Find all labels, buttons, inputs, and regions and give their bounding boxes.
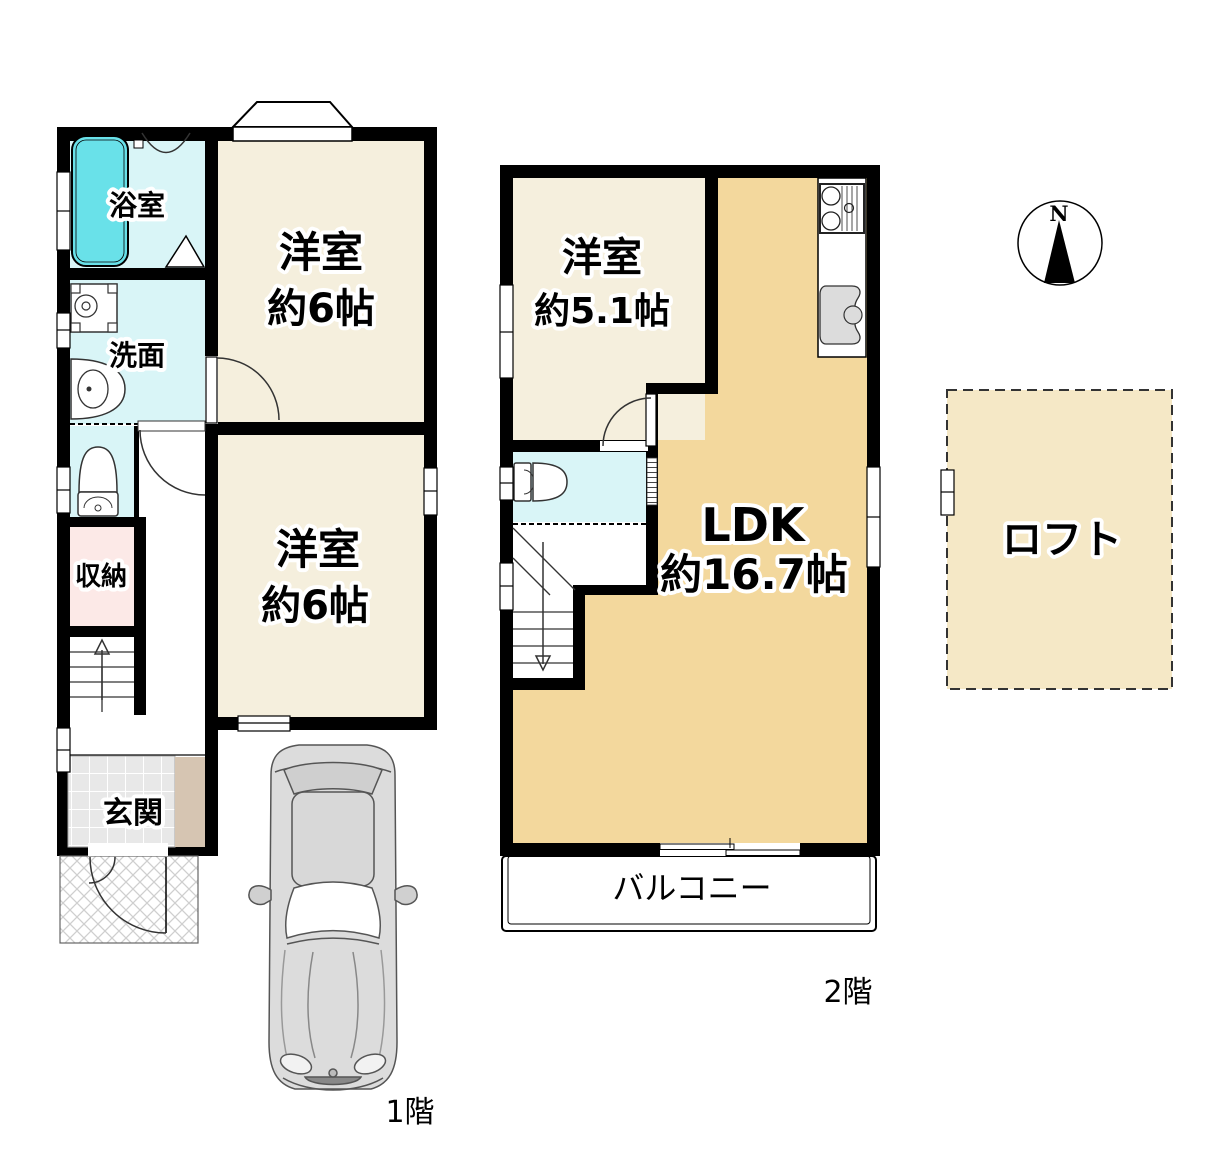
window-marker-toilet2-left bbox=[500, 467, 513, 500]
balcony-label: バルコニー bbox=[612, 869, 771, 907]
bedroom2-name-label: 洋室 bbox=[276, 525, 360, 574]
car-icon bbox=[249, 745, 417, 1090]
wall-toilet-bottom bbox=[57, 517, 146, 527]
entrance-label: 玄関 bbox=[103, 796, 163, 831]
bedroom1-size-label: 約6帖 bbox=[267, 286, 375, 332]
kitchen-stove-icon bbox=[820, 184, 864, 233]
wall-notch-horizontal bbox=[646, 383, 718, 394]
toilet2-door-accordion bbox=[647, 458, 657, 505]
wall-toilet-partition bbox=[134, 426, 139, 517]
bedroom1-name-label: 洋室 bbox=[279, 228, 363, 277]
window-marker-ldk-right bbox=[867, 467, 880, 567]
bedroom2-area bbox=[218, 435, 424, 717]
window-marker-entrance bbox=[57, 728, 70, 772]
shower-hook bbox=[134, 140, 143, 148]
bay-window bbox=[233, 102, 352, 141]
bedroom1-area bbox=[218, 141, 424, 422]
bedroom1-door-leaf bbox=[206, 357, 217, 423]
wall-stairs2-bottom bbox=[500, 678, 585, 690]
window-marker-loft bbox=[941, 470, 954, 515]
ldk-name-label: LDK bbox=[701, 498, 806, 552]
stairs2-landing-area bbox=[513, 522, 646, 595]
bedroom3-size-label: 約5.1帖 bbox=[534, 291, 670, 332]
entrance-step bbox=[175, 757, 205, 847]
floor2-plan bbox=[500, 165, 880, 931]
floor1-label: 1階 bbox=[385, 1095, 434, 1130]
floorplan-canvas: 浴室 洗面 収納 玄関 洋室 約6帖 洋室 約6帖 1階 洋室 約5.1帖 LD… bbox=[0, 0, 1225, 1172]
floorplan-svg: 浴室 洗面 収納 玄関 洋室 約6帖 洋室 約6帖 1階 洋室 約5.1帖 LD… bbox=[0, 0, 1225, 1172]
wall-landing bbox=[573, 585, 658, 595]
window-marker-bedroom2-bottom bbox=[238, 716, 290, 731]
bedroom3-name-label: 洋室 bbox=[562, 235, 642, 281]
wall-bedroom3-right bbox=[705, 178, 718, 394]
wall-bedroom-divider bbox=[205, 422, 437, 435]
wall-storage-bottom bbox=[57, 626, 146, 637]
car-mirror-left bbox=[249, 886, 271, 905]
window-marker-washroom bbox=[57, 313, 70, 348]
wall-stairs-right bbox=[134, 517, 146, 715]
ldk-size-label: 約16.7帖 bbox=[660, 550, 848, 599]
storage-label: 収納 bbox=[75, 561, 127, 592]
wall-bath-washroom bbox=[57, 268, 205, 280]
bedroom2-size-label: 約6帖 bbox=[261, 583, 369, 629]
window-marker-bathroom bbox=[57, 172, 70, 250]
wall-stairs2-right bbox=[573, 595, 585, 678]
car-mirror-right bbox=[395, 886, 417, 905]
north-label: N bbox=[1049, 201, 1068, 226]
loft-label: ロフト bbox=[1002, 517, 1122, 563]
wall-center-vertical bbox=[205, 141, 218, 843]
washroom-label: 洗面 bbox=[109, 339, 165, 372]
car-roof bbox=[292, 792, 374, 886]
hall-door-bar bbox=[138, 421, 205, 431]
bathroom-label: 浴室 bbox=[109, 189, 165, 222]
bedroom3-door-leaf bbox=[646, 394, 656, 446]
kitchen-sink-icon bbox=[820, 286, 862, 344]
bedroom3-door-opening bbox=[600, 441, 648, 451]
porch-area bbox=[60, 856, 198, 943]
window-marker-bedroom3-left bbox=[500, 285, 513, 378]
toilet2-icon bbox=[514, 463, 567, 501]
washing-machine-icon bbox=[71, 284, 117, 332]
floor2-label: 2階 bbox=[823, 975, 872, 1010]
window-marker-stairs2-left bbox=[500, 563, 513, 610]
toilet1-icon bbox=[78, 447, 118, 516]
entrance-door-opening bbox=[88, 843, 168, 856]
window-marker-bedroom2-right bbox=[424, 468, 437, 515]
car-rear-glass bbox=[284, 763, 382, 795]
car-windshield bbox=[286, 882, 381, 938]
car-badge bbox=[329, 1069, 337, 1077]
window-marker-toilet1 bbox=[57, 467, 70, 513]
